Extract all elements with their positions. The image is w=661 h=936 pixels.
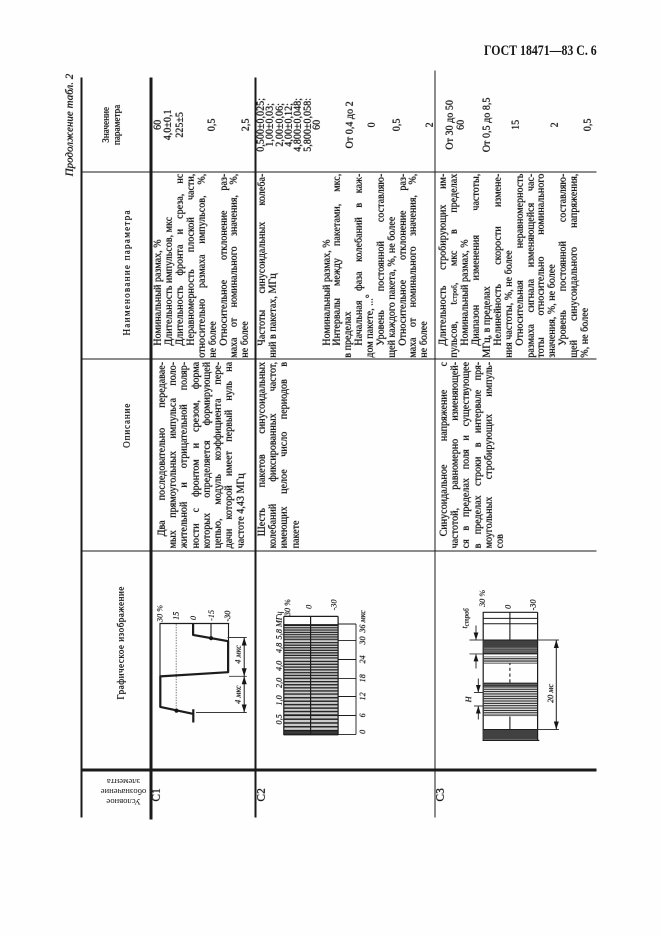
svg-text:-30: -30 [223,610,232,621]
svg-text:0: 0 [503,604,512,608]
svg-text:4,8: 4,8 [274,642,283,652]
svg-text:6: 6 [358,712,367,717]
svg-text:20 мс: 20 мс [546,683,555,702]
svg-text:4,0: 4,0 [274,660,283,670]
svg-text:30 %: 30 % [283,598,292,616]
svg-text:2,0: 2,0 [274,677,283,687]
svg-text:-15: -15 [206,610,215,621]
svg-text:0: 0 [188,616,197,620]
svg-text:Н: Н [464,695,473,703]
svg-text:12: 12 [358,692,367,700]
svg-text:0: 0 [304,604,313,608]
svg-text:tстроб: tстроб [460,607,471,628]
svg-text:30: 30 [358,636,367,645]
svg-text:5,8 МГц: 5,8 МГц [274,611,283,639]
svg-text:30 %: 30 % [155,604,164,622]
svg-text:0,5: 0,5 [274,714,283,724]
svg-text:-30: -30 [329,599,338,610]
svg-text:4 мкс: 4 мкс [233,685,242,704]
svg-text:1,0: 1,0 [274,695,283,705]
svg-text:24: 24 [358,655,367,663]
svg-text:18: 18 [358,674,367,682]
svg-text:4 мкс: 4 мкс [233,644,242,663]
svg-text:15: 15 [171,611,180,619]
svg-text:-30: -30 [528,599,537,610]
svg-text:30 %: 30 % [477,589,486,607]
svg-text:36 мкс: 36 мкс [358,609,367,633]
svg-text:0: 0 [358,729,367,733]
